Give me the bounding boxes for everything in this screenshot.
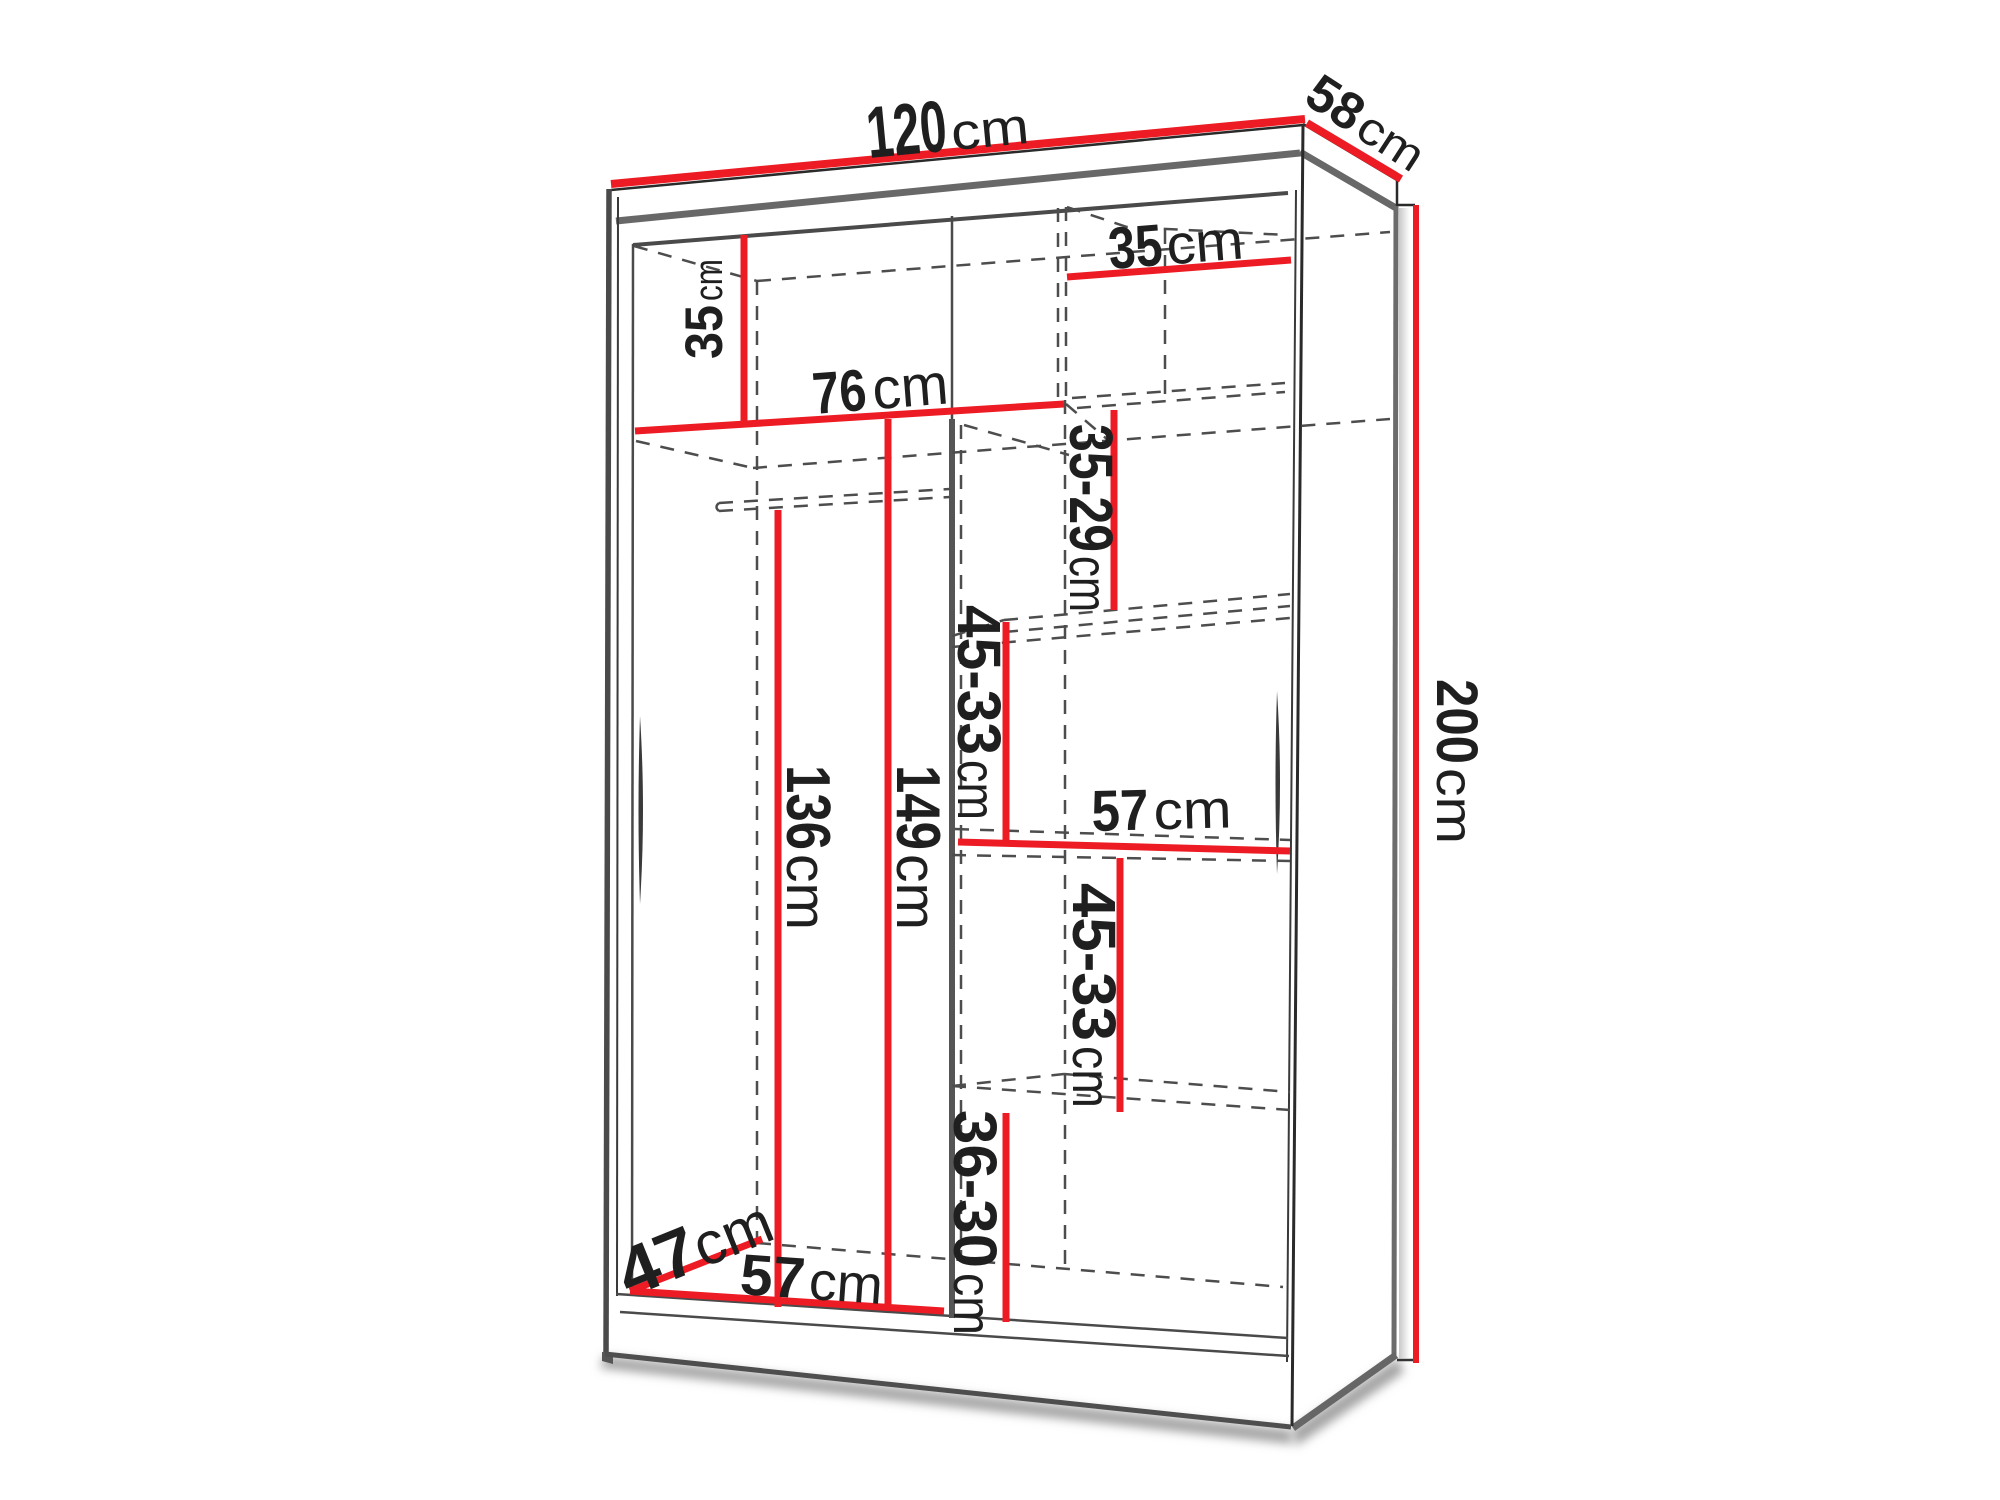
svg-text:35-29: 35-29: [1057, 424, 1125, 552]
svg-text:35: 35: [675, 305, 734, 359]
svg-text:cm: cm: [942, 1273, 1002, 1335]
svg-text:120: 120: [863, 86, 950, 174]
svg-text:35: 35: [1106, 212, 1165, 282]
svg-text:cm: cm: [946, 760, 1006, 820]
svg-text:57: 57: [1091, 778, 1150, 844]
svg-text:cm: cm: [870, 351, 951, 422]
svg-text:cm: cm: [1425, 768, 1483, 844]
svg-text:200: 200: [1424, 679, 1489, 764]
svg-text:cm: cm: [1153, 779, 1233, 841]
svg-text:149: 149: [883, 765, 952, 850]
svg-text:cm: cm: [1058, 556, 1118, 612]
svg-text:76: 76: [810, 357, 869, 427]
svg-text:cm: cm: [687, 259, 731, 301]
svg-text:cm: cm: [948, 97, 1031, 161]
svg-text:36-30: 36-30: [941, 1110, 1009, 1268]
svg-text:cm: cm: [884, 854, 948, 930]
svg-text:45-33: 45-33: [1060, 883, 1128, 1041]
svg-text:cm: cm: [1061, 1046, 1121, 1108]
svg-text:cm: cm: [807, 1251, 885, 1316]
svg-text:136: 136: [773, 765, 842, 850]
svg-text:cm: cm: [774, 854, 838, 930]
svg-text:45-33: 45-33: [945, 605, 1013, 755]
svg-text:cm: cm: [1164, 208, 1246, 277]
svg-text:57: 57: [738, 1242, 807, 1311]
